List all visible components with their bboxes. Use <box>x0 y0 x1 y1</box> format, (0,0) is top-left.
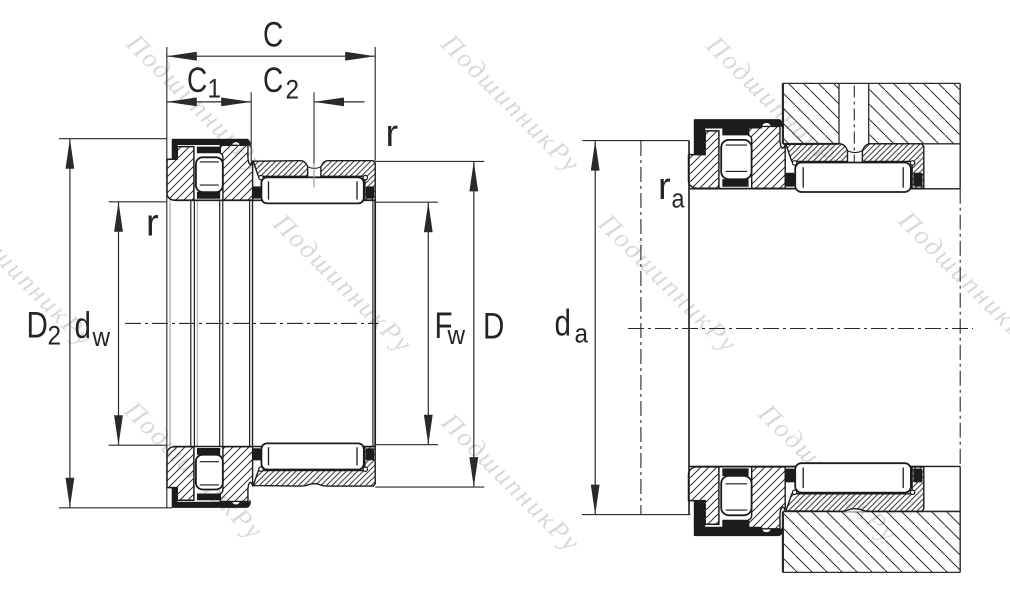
svg-text:r: r <box>658 166 671 208</box>
svg-text:1: 1 <box>208 74 222 103</box>
svg-text:C: C <box>263 60 283 100</box>
svg-text:D: D <box>27 305 48 346</box>
svg-text:C: C <box>187 60 207 100</box>
svg-text:C: C <box>263 14 283 54</box>
svg-text:d: d <box>75 306 91 347</box>
svg-text:D: D <box>483 306 504 347</box>
svg-text:a: a <box>672 185 685 213</box>
svg-text:2: 2 <box>286 75 300 104</box>
svg-text:a: a <box>575 319 589 348</box>
svg-text:d: d <box>555 303 571 344</box>
svg-text:r: r <box>386 113 399 155</box>
svg-text:2: 2 <box>48 321 62 350</box>
svg-text:w: w <box>92 323 111 352</box>
svg-text:w: w <box>447 321 466 350</box>
svg-text:r: r <box>146 203 159 245</box>
